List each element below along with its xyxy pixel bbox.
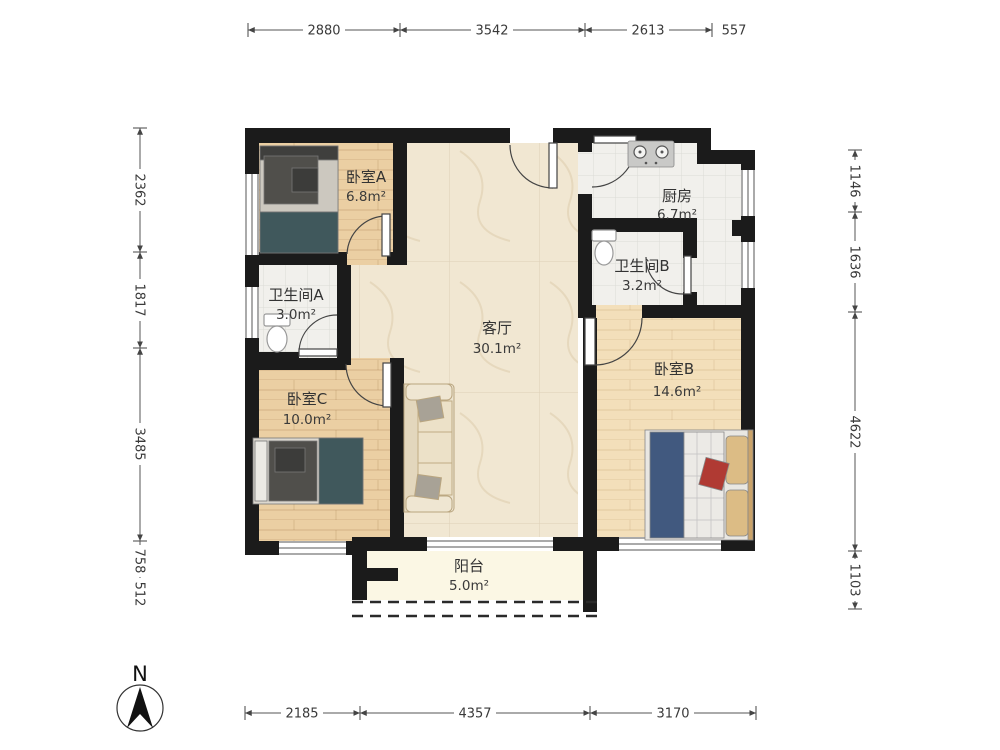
room-label-bathroom-b: 卫生间B: [614, 257, 669, 275]
room-area-bedroom-b: 14.6m²: [653, 384, 702, 400]
room-area-bathroom-b: 3.2m²: [622, 278, 662, 294]
dim-label: 512: [132, 582, 147, 607]
living-floor-ext: [345, 265, 404, 358]
wall: [390, 358, 404, 541]
room-label-bedroom-c: 卧室C: [287, 390, 327, 408]
dim-label: 1146: [847, 164, 862, 197]
wall: [642, 305, 755, 318]
wall: [683, 232, 697, 258]
wall: [741, 216, 755, 242]
dim-bottom: 2185 4357 3170: [245, 706, 756, 722]
dim-label: 1103: [847, 563, 862, 596]
dim-label: 2880: [307, 24, 340, 39]
dim-label: 3170: [656, 707, 689, 722]
room-label-bathroom-a: 卫生间A: [268, 286, 324, 304]
wall: [245, 252, 347, 265]
north-pointer-icon: [127, 687, 153, 728]
window: [741, 242, 755, 288]
dim-label: 557: [722, 24, 747, 39]
room-label-bedroom-a: 卧室A: [346, 168, 387, 186]
room-area-kitchen: 6.7m²: [657, 207, 697, 223]
stove-icon: [628, 141, 674, 167]
wall: [732, 220, 741, 236]
dim-left: 2362 1817 3485 758 512: [132, 128, 149, 610]
bed-double-b: [645, 430, 753, 540]
floor-plan-svg: 卧室A 6.8m² 厨房 6.7m² 卫生间A 3.0m² 卫生间B 3.2m²…: [0, 0, 1000, 750]
room-area-bathroom-a: 3.0m²: [276, 307, 316, 323]
dim-label: 1817: [132, 283, 147, 316]
window: [279, 541, 346, 555]
dim-label: 758: [132, 549, 147, 574]
wall: [352, 537, 427, 551]
wall: [245, 358, 346, 370]
room-area-living: 30.1m²: [473, 341, 522, 357]
north-label: N: [132, 662, 148, 686]
room-area-bedroom-a: 6.8m²: [346, 189, 386, 205]
dim-right: 1146 1636 4622 1103: [847, 150, 864, 609]
room-label-balcony: 阳台: [454, 557, 484, 575]
dim-top: 2880 3542 2613 557: [248, 23, 746, 39]
window: [245, 174, 259, 255]
wall: [245, 128, 259, 174]
dim-label: 2362: [132, 173, 147, 206]
north-arrow: N: [117, 662, 163, 731]
wall: [578, 305, 596, 318]
sofa: [404, 384, 454, 512]
room-label-bedroom-b: 卧室B: [654, 360, 694, 378]
room-label-kitchen: 厨房: [662, 187, 692, 205]
window: [741, 170, 755, 216]
wall: [741, 150, 755, 170]
wall: [597, 537, 619, 551]
room-area-bedroom-c: 10.0m²: [283, 412, 332, 428]
balcony-railing: [352, 602, 597, 616]
dim-label: 2185: [285, 707, 318, 722]
window: [245, 287, 259, 338]
floor-plan: 卧室A 6.8m² 厨房 6.7m² 卫生间A 3.0m² 卫生间B 3.2m²…: [0, 0, 1000, 750]
wall: [245, 128, 510, 143]
wall: [578, 143, 592, 152]
dim-label: 2613: [631, 24, 664, 39]
balcony-sliding-door: [427, 537, 553, 551]
wall: [337, 265, 351, 365]
room-area-balcony: 5.0m²: [449, 578, 489, 594]
wall: [352, 568, 398, 581]
dim-label: 1636: [847, 245, 862, 278]
dim-label: 3485: [132, 427, 147, 460]
wall: [245, 541, 279, 555]
dim-label: 4622: [847, 415, 862, 448]
bed-single-c: [253, 438, 363, 504]
dim-label: 3542: [475, 24, 508, 39]
wall: [393, 143, 407, 265]
wall: [578, 194, 592, 312]
room-label-living: 客厅: [482, 319, 512, 337]
bed-single-a: [260, 146, 338, 253]
dim-label: 4357: [458, 707, 491, 722]
